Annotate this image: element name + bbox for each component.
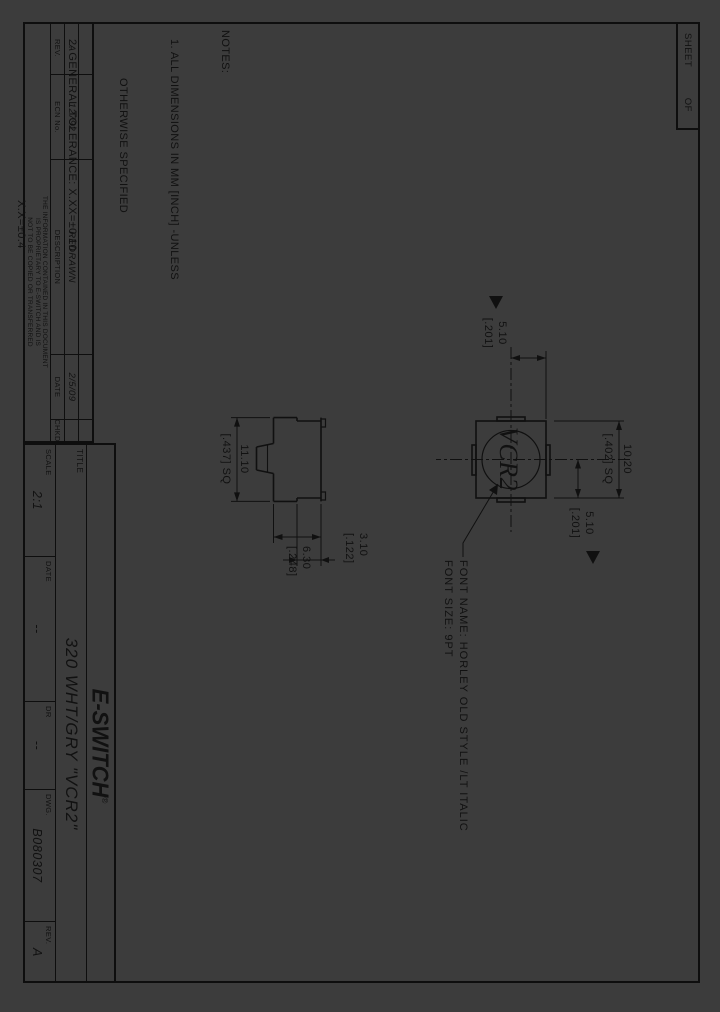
proprietary-note: THE INFORMATION CONTAINED IN THIS DOCUME… [24,22,50,442]
dim-arrow [575,460,581,469]
proprietary-line3: NOT TO BE COPIED OR TRANSFERRED [26,122,34,442]
font-note-line1: FONT NAME: HORLEY OLD STYLE /LT ITALIC [457,560,469,832]
header-description: DESCRIPTION [50,160,64,355]
dim-text-center-left-in: [.201] [482,318,494,349]
dr-cell: DR -- [24,702,55,790]
drawing-title: 320 WHT/GRY "VCR2" [61,638,81,831]
date-value: 2/5/09 [64,355,78,420]
dim-text-width-mm: 11.10 [238,444,250,473]
dim-arrow [321,557,329,563]
title-label: TITLE [75,449,84,473]
date-cell: DATE -- [24,557,55,702]
dim-arrow [234,418,240,427]
dim-arrow [537,355,546,361]
dr-label: DR [44,706,53,718]
table-cell-empty [78,355,92,420]
scale-value: 2:1 [30,445,44,556]
dwg-label: DWG. [44,794,53,816]
drawing-sheet: SHEET OF VCR2 10.20 [.402] SQ [0,0,720,1012]
rev-value: A [64,22,78,75]
revision-row-empty [78,22,92,441]
dim-arrow [616,421,622,430]
note-1-cont: OTHERWISE SPECIFIED [114,30,131,292]
eswitch-logo: E-SWITCH® [87,689,114,804]
cap-walls [297,421,321,498]
dim-text-center-top-mm: 5.10 [583,511,595,534]
rev-label: REV. [44,926,53,944]
header-rev: REV. [50,22,64,75]
drawing-sheet-viewport: SHEET OF VCR2 10.20 [.402] SQ [0,0,720,1012]
dim-arrow [575,489,581,498]
logo-row: E-SWITCH® [86,445,114,983]
dim-arrow [312,534,321,540]
flag-triangle-icon [489,296,503,309]
description-value: REDRAWN [64,160,78,355]
scale-label: SCALE [44,449,53,476]
centerlines [436,347,630,532]
header-date: DATE [50,355,64,420]
notes-heading: NOTES: [216,30,233,292]
dwg-cell: DWG. B080307 [24,790,55,922]
table-cell-empty [78,420,92,441]
proprietary-line2: IS PROPRIETARY TO E-SWITCH AND IS [33,122,41,442]
font-note-leader: FONT NAME: HORLEY OLD STYLE /LT ITALIC F… [442,484,498,832]
title-block: E-SWITCH® TITLE 320 WHT/GRY "VCR2" SCALE… [24,443,116,983]
dim-arrow [274,534,283,540]
chkd-value [64,420,78,441]
header-chkd: CHKD [50,420,64,441]
proprietary-line1: THE INFORMATION CONTAINED IN THIS DOCUME… [41,122,49,442]
table-cell-empty [78,160,92,355]
title-fields-row: SCALE 2:1 DATE -- DR -- DWG. B080307 REV… [24,445,55,983]
scale-cell: SCALE 2:1 [24,445,55,557]
rev-field-value: A [30,922,44,983]
dim-arrow [234,492,240,501]
dim-text-overall-in: [.402] SQ [602,434,614,485]
cap-flange [274,418,298,502]
dim-center-left-5-10: 5.10 [.201] [482,296,546,419]
dwg-number: B080307 [30,790,44,921]
dr-value: -- [30,702,44,789]
ecn-value: 12792 [64,75,78,160]
date-field-value: -- [30,557,44,701]
dim-width-11-10: 11.10 [.437] SQ [220,418,270,502]
dim-text-overall-mm: 10.20 [621,444,633,474]
dim-text-top-in: [.122] [343,533,355,564]
registered-mark: ® [101,797,110,803]
cap-stem [257,444,274,474]
dim-text-height-mm: 6.30 [300,546,312,569]
side-view [257,418,326,502]
revision-table: A 12792 REDRAWN 2/5/09 REV. ECN No. DESC… [24,22,94,443]
table-cell-empty [78,75,92,160]
header-ecn: ECN No. [50,75,64,160]
dim-text-center-top-in: [.201] [569,508,581,539]
table-cell-empty [78,22,92,75]
dim-text-center-left-mm: 5.10 [496,321,508,344]
date-label: DATE [44,561,53,582]
logo-text: E-SWITCH [88,689,114,798]
dim-text-width-in: [.437] SQ [220,434,232,485]
revision-header-row: REV. ECN No. DESCRIPTION DATE CHKD [50,22,64,441]
flag-triangle-icon [586,551,600,564]
dim-arrow [511,355,520,361]
dim-center-top-5-10: 5.10 [.201] [569,460,600,565]
title-row: TITLE 320 WHT/GRY "VCR2" [55,445,86,983]
revision-row-a: A 12792 REDRAWN 2/5/09 [64,22,78,441]
dim-arrow [616,489,622,498]
rev-cell: REV. A [24,922,55,983]
font-note-line2: FONT SIZE: 9PT [442,560,454,658]
dim-text-top-mm: 3.10 [357,533,369,556]
note-1: 1. ALL DIMENSIONS IN MM [INCH] -UNLESS [165,30,182,292]
